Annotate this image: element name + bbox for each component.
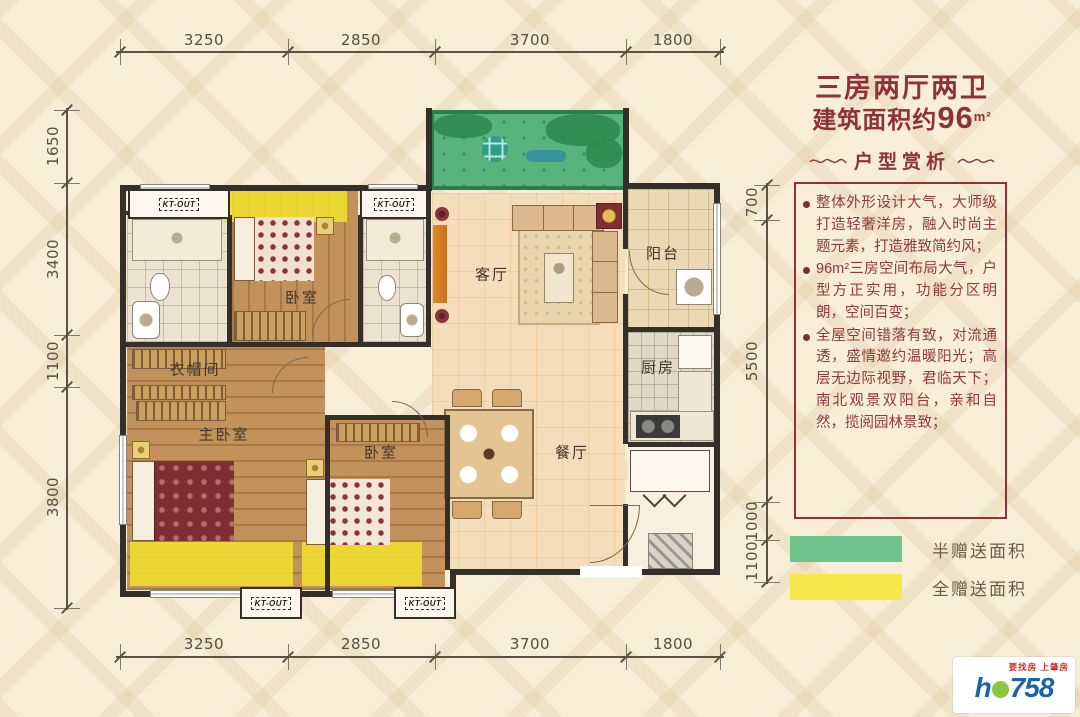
room-label-bedroom-bottom: 卧室 [364, 442, 398, 463]
dim-label: 2850 [341, 635, 381, 653]
nightstand [306, 459, 324, 477]
wall-segment [623, 189, 628, 249]
ac-platform-label: KT-OUT [374, 198, 415, 211]
area-title: 建筑面积约96m² [790, 100, 1014, 136]
wall-segment [623, 183, 720, 189]
dim-label: 3700 [510, 31, 550, 49]
wall-segment [623, 108, 629, 189]
wall-segment [358, 215, 363, 347]
washing-machine [676, 269, 712, 305]
master-wardrobe [136, 401, 226, 421]
wall-segment [426, 108, 432, 191]
dim-line-top [116, 51, 724, 53]
bed-quilt [254, 217, 314, 281]
dim-label: 3800 [44, 477, 62, 517]
entry-opening [580, 566, 642, 577]
dim-label: 1100 [743, 541, 761, 581]
chair [492, 501, 522, 519]
coffee-table [544, 253, 574, 303]
ac-platform: KT-OUT [240, 587, 302, 619]
shower [366, 219, 424, 261]
description-item: 96m²三房空间布局大气，户型方正实用，功能分区明朗，空间百变； [803, 259, 997, 324]
wall-segment [445, 420, 450, 570]
wall-segment [628, 442, 714, 447]
flourish-icon [957, 155, 995, 167]
wall-segment [325, 415, 450, 420]
dim-label: 1100 [44, 341, 62, 381]
dim-label: 3250 [184, 31, 224, 49]
ac-platform: KT-OUT [128, 189, 230, 219]
section-header: 户型赏析 [790, 147, 1014, 174]
logo-brand-suffix: 758 [1010, 674, 1054, 702]
chair [492, 389, 522, 407]
nightstand [132, 441, 150, 459]
wall-segment [325, 420, 330, 591]
logo-brand: h 758 [953, 674, 1075, 702]
room-label-master: 主卧室 [198, 424, 249, 445]
window [713, 203, 721, 315]
plant-icon [435, 309, 449, 323]
dim-line-bottom [116, 656, 724, 658]
sink [132, 301, 160, 339]
legend-label: 半赠送面积 [932, 537, 1027, 562]
dim-label: 1000 [743, 501, 761, 541]
dim-label: 3400 [44, 239, 62, 279]
dim-line-right [766, 183, 768, 584]
dim-label: 3250 [184, 635, 224, 653]
side-table [596, 203, 622, 229]
legend-swatch-green [790, 536, 902, 562]
section-header-text: 户型赏析 [854, 147, 950, 174]
sink [400, 303, 424, 337]
parasol-icon [482, 136, 508, 162]
room-label-dining: 餐厅 [555, 442, 589, 463]
service-platform [630, 450, 710, 492]
logo-slogan: 要找房 上肇房 [953, 657, 1075, 673]
bedroom-bottom-door [392, 401, 428, 437]
ac-platform-label: KT-OUT [159, 198, 200, 211]
toilet [378, 275, 396, 301]
ac-platform: KT-OUT [360, 189, 428, 219]
legend-half-gift: 半赠送面积 [790, 536, 1027, 562]
window [150, 590, 250, 598]
area-number: 96 [937, 100, 973, 135]
shower [132, 219, 222, 261]
dim-label: 1800 [653, 31, 693, 49]
garden-balcony-half-gift [430, 110, 627, 190]
garden-bench-icon [526, 150, 566, 162]
legend-swatch-yellow [790, 574, 902, 600]
sofa [592, 231, 618, 323]
wall-segment [120, 185, 126, 597]
tv-cabinet [433, 225, 447, 303]
ac-platform: KT-OUT [394, 587, 456, 619]
room-label-closet: 衣帽间 [169, 359, 220, 380]
floorplan-poster: 3250 2850 3700 1800 3250 2850 3700 1800 … [0, 0, 1080, 717]
wall-segment [628, 327, 714, 332]
logo-brand-prefix: h [975, 674, 991, 702]
description-item: 全屋空间错落有致，对流通透，盛情邀约温暖阳光；高层无边际视野，君临天下；南北观景… [803, 326, 997, 435]
gift-area-bedroom-bottom [302, 542, 422, 586]
foliage-icon [434, 114, 492, 138]
dim-label: 1800 [653, 635, 693, 653]
wall-segment [120, 342, 431, 347]
ac-platform-label: KT-OUT [251, 597, 292, 610]
logo-bubble-icon [992, 681, 1009, 698]
area-prefix: 建筑面积约 [812, 107, 937, 134]
dim-label: 5500 [743, 341, 761, 381]
area-unit: m² [974, 109, 992, 124]
description-item: 整体外形设计大气，大师级打造轻奢洋房，融入时尚主题元素，打造雅致简约风； [803, 193, 997, 258]
dining-table [444, 409, 534, 499]
wall-segment [227, 215, 232, 347]
stove [636, 415, 680, 438]
wall-segment [623, 294, 628, 444]
window [119, 435, 127, 525]
room-label-kitchen: 厨房 [641, 357, 675, 378]
bed-quilt [326, 479, 390, 545]
nightstand [316, 217, 334, 235]
fridge [678, 335, 712, 369]
dim-label: 1650 [44, 126, 62, 166]
closet-rack [132, 385, 226, 400]
master-bed-quilt [154, 461, 234, 541]
foliage-icon [586, 138, 622, 168]
ac-pad [648, 533, 693, 569]
description-list: 整体外形设计大气，大师级打造轻奢洋房，融入时尚主题元素，打造雅致简约风； 96m… [803, 193, 997, 434]
dim-label: 2850 [341, 31, 381, 49]
site-logo: 要找房 上肇房 h 758 [953, 657, 1075, 713]
toilet [150, 273, 170, 301]
description-box: 整体外形设计大气，大师级打造轻奢洋房，融入时尚主题元素，打造雅致简约风； 96m… [794, 182, 1007, 519]
plant-icon [435, 207, 449, 221]
sofa [512, 205, 604, 231]
dim-label: 700 [743, 187, 761, 217]
gift-area-master [130, 542, 293, 586]
legend-label: 全赠送面积 [932, 575, 1027, 600]
floorplan: KT-OUT KT-OUT KT-OUT KT-OUT [120, 105, 720, 610]
room-label-living: 客厅 [475, 264, 509, 285]
chair [452, 501, 482, 519]
room-label-bedroom-top: 卧室 [285, 287, 319, 308]
room-label-balcony: 阳台 [646, 243, 680, 264]
wardrobe [234, 311, 306, 341]
flourish-icon [809, 155, 847, 167]
dim-label: 3700 [510, 635, 550, 653]
legend-full-gift: 全赠送面积 [790, 574, 1027, 600]
ac-platform-label: KT-OUT [405, 597, 446, 610]
chair [452, 389, 482, 407]
